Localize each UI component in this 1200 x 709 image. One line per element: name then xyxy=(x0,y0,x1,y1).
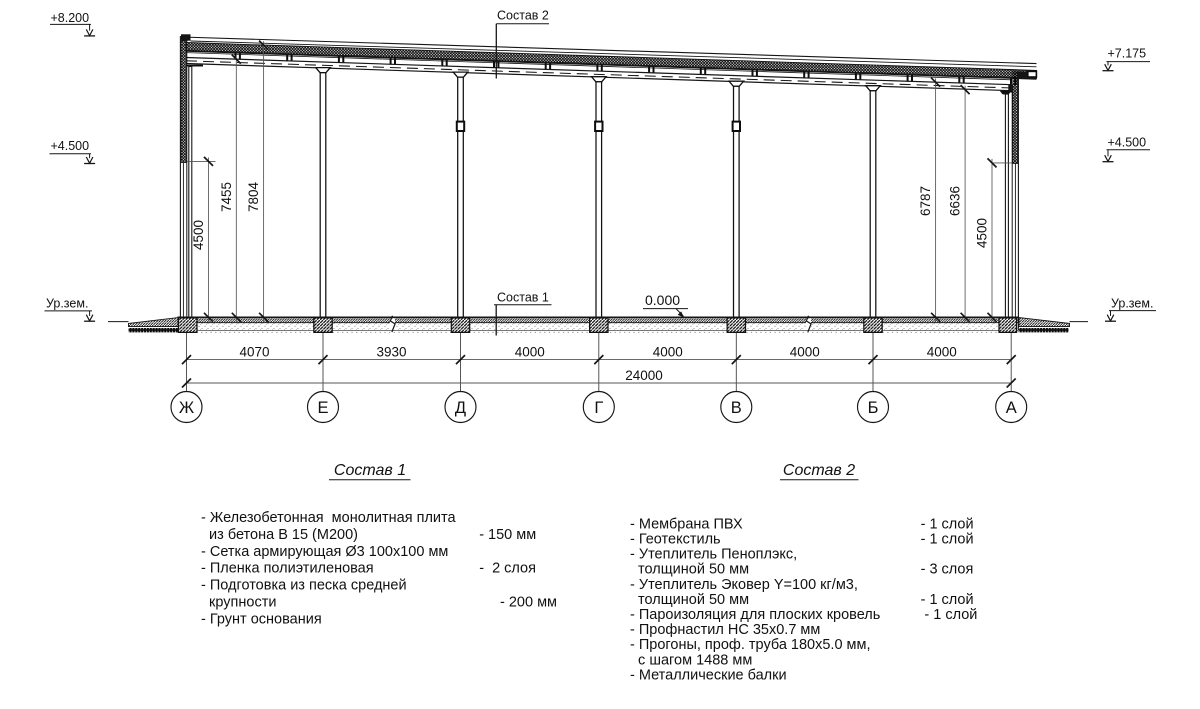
svg-text:- 1 слой: - 1 слой xyxy=(921,532,974,548)
svg-text:- Утеплитель Эковер Y=100 кг/м: - Утеплитель Эковер Y=100 кг/м3, xyxy=(630,577,858,593)
svg-text:4500: 4500 xyxy=(975,218,990,248)
svg-text:Состав 1: Состав 1 xyxy=(497,290,549,304)
svg-text:- Утеплитель Пеноплэкс,: - Утеплитель Пеноплэкс, xyxy=(630,547,797,563)
svg-text:- Геотекстиль: - Геотекстиль xyxy=(630,532,721,548)
svg-text:- Подготовка из песка средней: - Подготовка из песка средней xyxy=(201,578,407,594)
svg-text:+4.500: +4.500 xyxy=(1108,135,1147,149)
svg-text:Е: Е xyxy=(317,399,328,417)
svg-text:- 1 слой: - 1 слой xyxy=(921,516,974,532)
svg-text:Ур.зем.: Ур.зем. xyxy=(1111,296,1153,310)
svg-text:+4.500: +4.500 xyxy=(51,139,90,153)
svg-text:4070: 4070 xyxy=(239,345,269,360)
svg-text:Ур.зем.: Ур.зем. xyxy=(46,296,88,310)
svg-text:- Грунт основания: - Грунт основания xyxy=(201,611,322,627)
svg-text:с шагом 1488 мм: с шагом 1488 мм xyxy=(630,652,752,668)
svg-text:Д: Д xyxy=(455,399,466,417)
svg-text:толщиной 50 мм: толщиной 50 мм xyxy=(630,562,749,578)
svg-text:+8.200: +8.200 xyxy=(51,11,90,25)
svg-text:- 150 мм: - 150 мм xyxy=(479,527,536,543)
svg-text:А: А xyxy=(1006,399,1017,417)
svg-text:Состав 2: Состав 2 xyxy=(783,462,855,479)
svg-text:толщиной 50 мм: толщиной 50 мм xyxy=(630,592,749,608)
svg-text:4500: 4500 xyxy=(191,220,206,250)
svg-text:- Металлические балки: - Металлические балки xyxy=(630,667,787,683)
svg-text:из бетона В 15 (М200): из бетона В 15 (М200) xyxy=(201,527,358,543)
svg-text:Ж: Ж xyxy=(179,399,195,417)
svg-text:- 1 слой: - 1 слой xyxy=(921,592,974,608)
svg-text:- Мембрана ПВХ: - Мембрана ПВХ xyxy=(630,516,743,532)
svg-text:- Пароизоляция для плоских кро: - Пароизоляция для плоских кровель xyxy=(630,607,880,623)
svg-text:- 1 слой: - 1 слой xyxy=(924,607,977,623)
svg-text:Состав 2: Состав 2 xyxy=(497,8,549,22)
svg-text:24000: 24000 xyxy=(625,368,663,383)
svg-text:7455: 7455 xyxy=(219,182,234,212)
svg-text:Состав 1: Состав 1 xyxy=(334,462,406,479)
svg-text:4000: 4000 xyxy=(653,345,683,360)
svg-text:7804: 7804 xyxy=(246,181,261,212)
svg-text:4000: 4000 xyxy=(790,345,820,360)
svg-text:- Железобетонная монолитная п: - Железобетонная монолитная плита xyxy=(201,510,456,526)
svg-text:- Пленка полиэтиленовая: - Пленка полиэтиленовая xyxy=(201,561,374,577)
svg-text:Г: Г xyxy=(594,399,603,417)
svg-text:3930: 3930 xyxy=(376,345,406,360)
svg-text:4000: 4000 xyxy=(927,345,957,360)
svg-text:4000: 4000 xyxy=(515,345,545,360)
svg-text:- Прогоны, проф. труба 180х5.0: - Прогоны, проф. труба 180х5.0 мм, xyxy=(630,637,871,653)
svg-text:+7.175: +7.175 xyxy=(1108,47,1147,61)
svg-text:крупности: крупности xyxy=(201,595,276,611)
svg-text:- Сетка армирующая Ø3 100х100: - Сетка армирующая Ø3 100х100 мм xyxy=(201,544,448,560)
svg-text:Б: Б xyxy=(868,399,879,417)
svg-text:В: В xyxy=(731,399,742,417)
svg-text:- 3 слоя: - 3 слоя xyxy=(921,562,974,578)
svg-text:6636: 6636 xyxy=(948,186,963,216)
svg-text:- Профнастил НС 35х0.7 мм: - Профнастил НС 35х0.7 мм xyxy=(630,622,820,638)
svg-text:- 2 слоя: - 2 слоя xyxy=(479,561,536,577)
svg-text:0.000: 0.000 xyxy=(645,292,680,308)
svg-text:- 200 мм: - 200 мм xyxy=(500,595,557,611)
svg-text:6787: 6787 xyxy=(918,186,933,216)
